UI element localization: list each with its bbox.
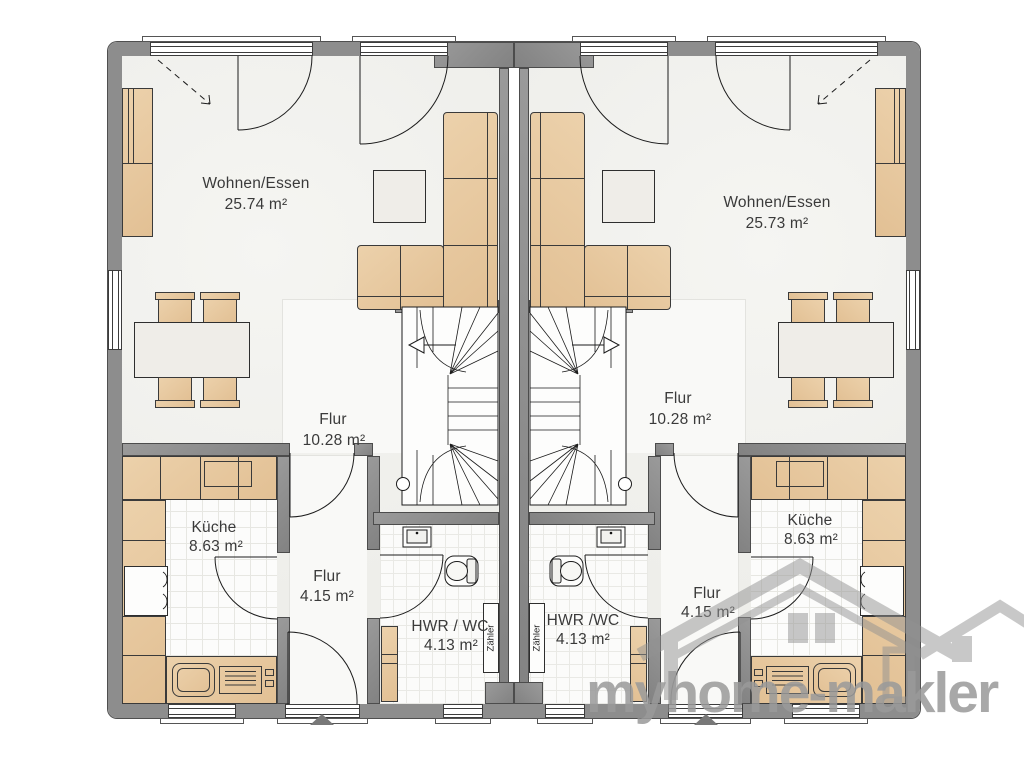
- entrance-marker: [694, 714, 718, 725]
- room-area-flur2-left: 4.15 m²: [300, 588, 354, 606]
- hall-floor: [529, 300, 745, 453]
- floor-plan: Wohnen/Essen 25.74 m² Wohnen/Essen 25.73…: [0, 0, 1024, 768]
- shelf-divider: [894, 89, 895, 163]
- room-label-hwr-right: HWR /WC: [547, 612, 620, 630]
- chair: [791, 377, 825, 401]
- kitchen-sink-basin: [818, 668, 851, 692]
- counter-divider: [863, 655, 905, 656]
- room-area-flur-right: 10.28 m²: [649, 411, 712, 429]
- coffee-table: [602, 170, 655, 223]
- room-area-flur2-right: 4.15 m²: [681, 604, 735, 622]
- sill: [784, 718, 868, 724]
- hwr-window: [545, 704, 585, 718]
- room-area-wohnen-left: 25.74 m²: [225, 196, 288, 214]
- sill: [572, 36, 676, 42]
- hwr-side-wall-upper: [648, 456, 661, 550]
- room-area-wohnen-right: 25.73 m²: [746, 215, 809, 233]
- kitchen-counter-top: [751, 456, 906, 500]
- room-label-flur-left: Flur: [319, 411, 347, 429]
- room-area-kueche-left: 8.63 m²: [189, 538, 243, 556]
- chair: [836, 377, 870, 401]
- kitchen-top-wall: [738, 443, 906, 456]
- side-window: [906, 270, 920, 350]
- room-area-kueche-right: 8.63 m²: [784, 531, 838, 549]
- sofa-line: [531, 245, 584, 246]
- counter-divider: [863, 616, 905, 617]
- hwr-cabinet-divider: [631, 663, 646, 664]
- shelf-divider: [899, 89, 900, 163]
- counter-divider: [827, 457, 828, 499]
- sofa-line: [584, 296, 670, 297]
- kitchen-side-wall-upper: [738, 456, 751, 553]
- room-label-wohnen-right: Wohnen/Essen: [723, 194, 830, 212]
- room-area-flur-left: 10.28 m²: [303, 432, 366, 450]
- hwr-top-wall: [529, 512, 655, 525]
- cooktop-hood: [776, 461, 824, 487]
- meter-label-right: Zähler: [532, 625, 543, 652]
- terrace-door-opening: [715, 42, 878, 56]
- chair-back: [833, 400, 873, 408]
- party-wall-bottom-pier: [514, 682, 543, 704]
- sofa-line: [540, 113, 541, 309]
- unit-right: [4, 0, 1024, 768]
- terrace-door-opening-2: [580, 42, 668, 56]
- drainer: [766, 666, 809, 694]
- room-label-hwr-left: HWR / WC: [411, 618, 488, 636]
- party-wall: [519, 68, 529, 704]
- room-label-flur2-right: Flur: [693, 585, 721, 603]
- sofa-line: [627, 246, 628, 309]
- chair: [791, 299, 825, 323]
- room-label-kueche-left: Küche: [192, 519, 237, 537]
- chair: [836, 299, 870, 323]
- hwr-side-wall-lower: [648, 618, 661, 704]
- room-label-flur2-left: Flur: [313, 568, 341, 586]
- room-label-kueche-right: Küche: [788, 512, 833, 530]
- room-area-hwr-left: 4.13 m²: [424, 637, 478, 655]
- shelf-divider: [875, 163, 906, 164]
- faucet: [754, 680, 763, 687]
- hwr-cabinet-divider: [631, 654, 646, 655]
- counter-divider: [867, 457, 868, 499]
- chair-back: [788, 400, 828, 408]
- meter-label-left: Zähler: [486, 625, 497, 652]
- sill: [707, 36, 886, 42]
- sofa-line: [531, 178, 584, 179]
- dining-table: [778, 322, 894, 378]
- faucet: [754, 669, 763, 676]
- hall-wall-stub: [655, 443, 674, 456]
- room-label-flur-right: Flur: [664, 390, 692, 408]
- counter-divider: [863, 540, 905, 541]
- stove: [860, 566, 904, 616]
- room-label-wohnen-left: Wohnen/Essen: [202, 175, 309, 193]
- small-hall-floor: [661, 456, 738, 704]
- kitchen-window: [792, 704, 860, 718]
- sill: [537, 718, 593, 724]
- hwr-cabinet: [630, 626, 647, 702]
- sofa-vertical: [530, 112, 585, 310]
- kitchen-side-wall-lower: [738, 617, 751, 704]
- room-area-hwr-right: 4.13 m²: [556, 631, 610, 649]
